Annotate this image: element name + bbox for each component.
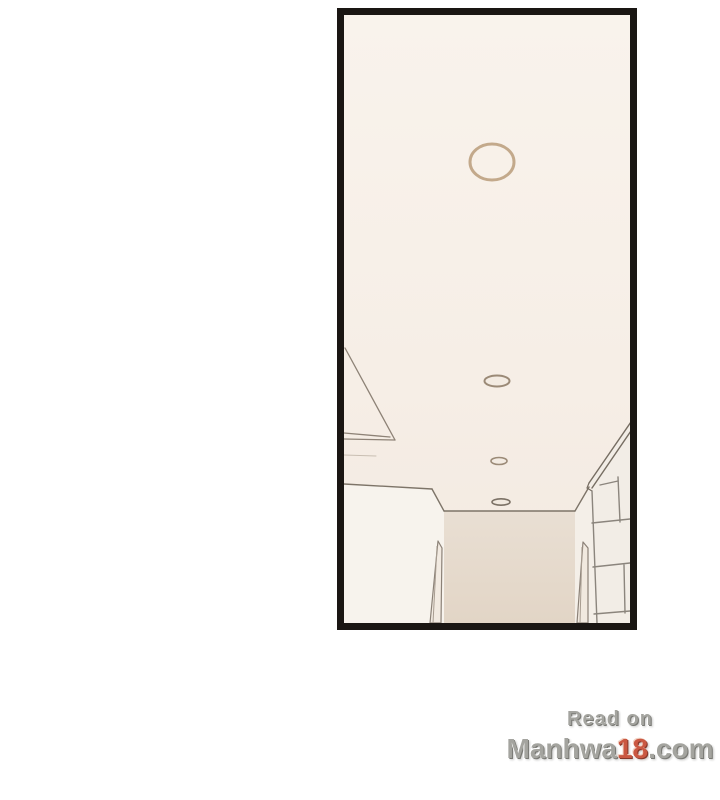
watermark-line1-text: Read on (567, 708, 653, 730)
ceiling-light (491, 458, 507, 465)
ceiling-light (485, 376, 510, 387)
ceiling-light (492, 499, 510, 505)
ceiling-scene-illustration (344, 15, 630, 623)
watermark-site-highlight: 18 (617, 733, 648, 764)
watermark-read-on: Read on (504, 706, 716, 732)
watermark-site-suffix: .com (648, 733, 713, 764)
watermark-site-name: Manhwa18.com (504, 733, 716, 765)
hallway-back-wall (444, 511, 575, 623)
watermark: Read on Manhwa18.com (504, 706, 716, 765)
comic-panel (337, 8, 637, 630)
ceiling-light (470, 144, 514, 180)
left-wall (344, 484, 444, 623)
watermark-site-prefix: Manhwa (507, 733, 617, 764)
